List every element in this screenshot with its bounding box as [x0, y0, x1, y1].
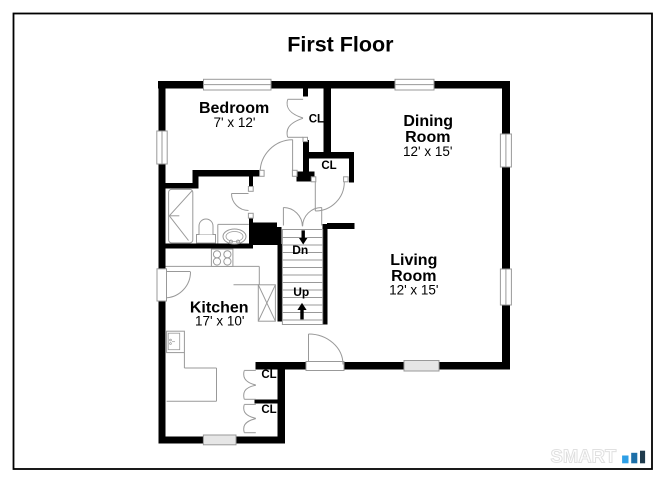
svg-text:SMART: SMART: [551, 446, 617, 467]
svg-text:17' x 10': 17' x 10': [195, 313, 244, 328]
svg-text:Living: Living: [390, 252, 437, 269]
svg-text:CL: CL: [321, 160, 336, 172]
svg-text:First Floor: First Floor: [287, 33, 394, 57]
svg-text:CL: CL: [261, 369, 276, 381]
svg-text:CL: CL: [261, 404, 276, 416]
svg-text:12' x 15': 12' x 15': [403, 144, 452, 159]
svg-text:Dining: Dining: [403, 113, 453, 130]
svg-text:12' x 15': 12' x 15': [389, 282, 438, 297]
svg-text:Up: Up: [293, 285, 309, 299]
svg-text:CL: CL: [309, 113, 324, 125]
svg-text:Dn: Dn: [292, 243, 308, 257]
svg-text:7' x 12': 7' x 12': [214, 115, 256, 130]
